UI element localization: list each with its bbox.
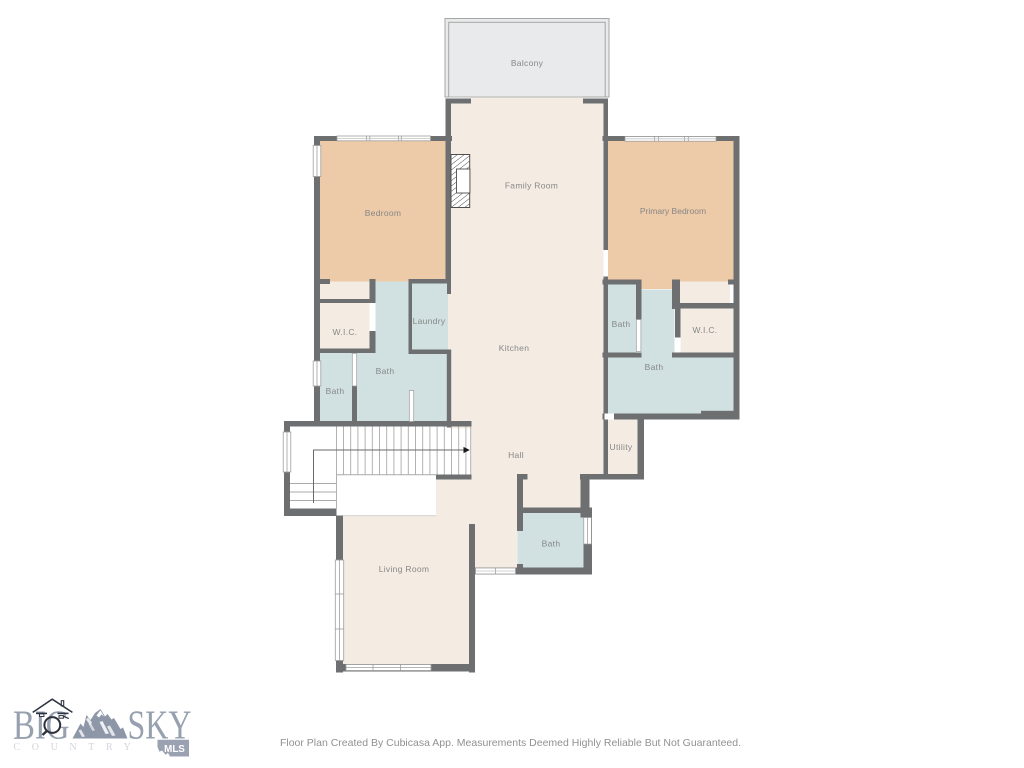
svg-text:Primary Bedroom: Primary Bedroom	[640, 206, 706, 216]
svg-text:Floor Plan Created By Cubicasa: Floor Plan Created By Cubicasa App. Meas…	[280, 737, 741, 749]
svg-text:W.I.C.: W.I.C.	[333, 327, 358, 337]
svg-text:Bath: Bath	[542, 539, 561, 549]
svg-text:Bath: Bath	[612, 319, 631, 329]
svg-text:W.I.C.: W.I.C.	[693, 325, 718, 335]
svg-text:Laundry: Laundry	[413, 316, 446, 326]
svg-text:COUNTRY: COUNTRY	[14, 742, 143, 753]
svg-text:Bedroom: Bedroom	[365, 208, 402, 218]
svg-text:Utility: Utility	[610, 442, 633, 452]
svg-text:Family Room: Family Room	[505, 181, 558, 191]
svg-text:Hall: Hall	[508, 450, 524, 460]
svg-text:Living Room: Living Room	[379, 564, 430, 574]
svg-text:Balcony: Balcony	[511, 58, 544, 68]
svg-text:MLS: MLS	[164, 744, 185, 755]
svg-text:Kitchen: Kitchen	[499, 343, 529, 353]
svg-text:Bath: Bath	[326, 386, 345, 396]
svg-text:Bath: Bath	[376, 366, 395, 376]
svg-text:Bath: Bath	[645, 362, 664, 372]
